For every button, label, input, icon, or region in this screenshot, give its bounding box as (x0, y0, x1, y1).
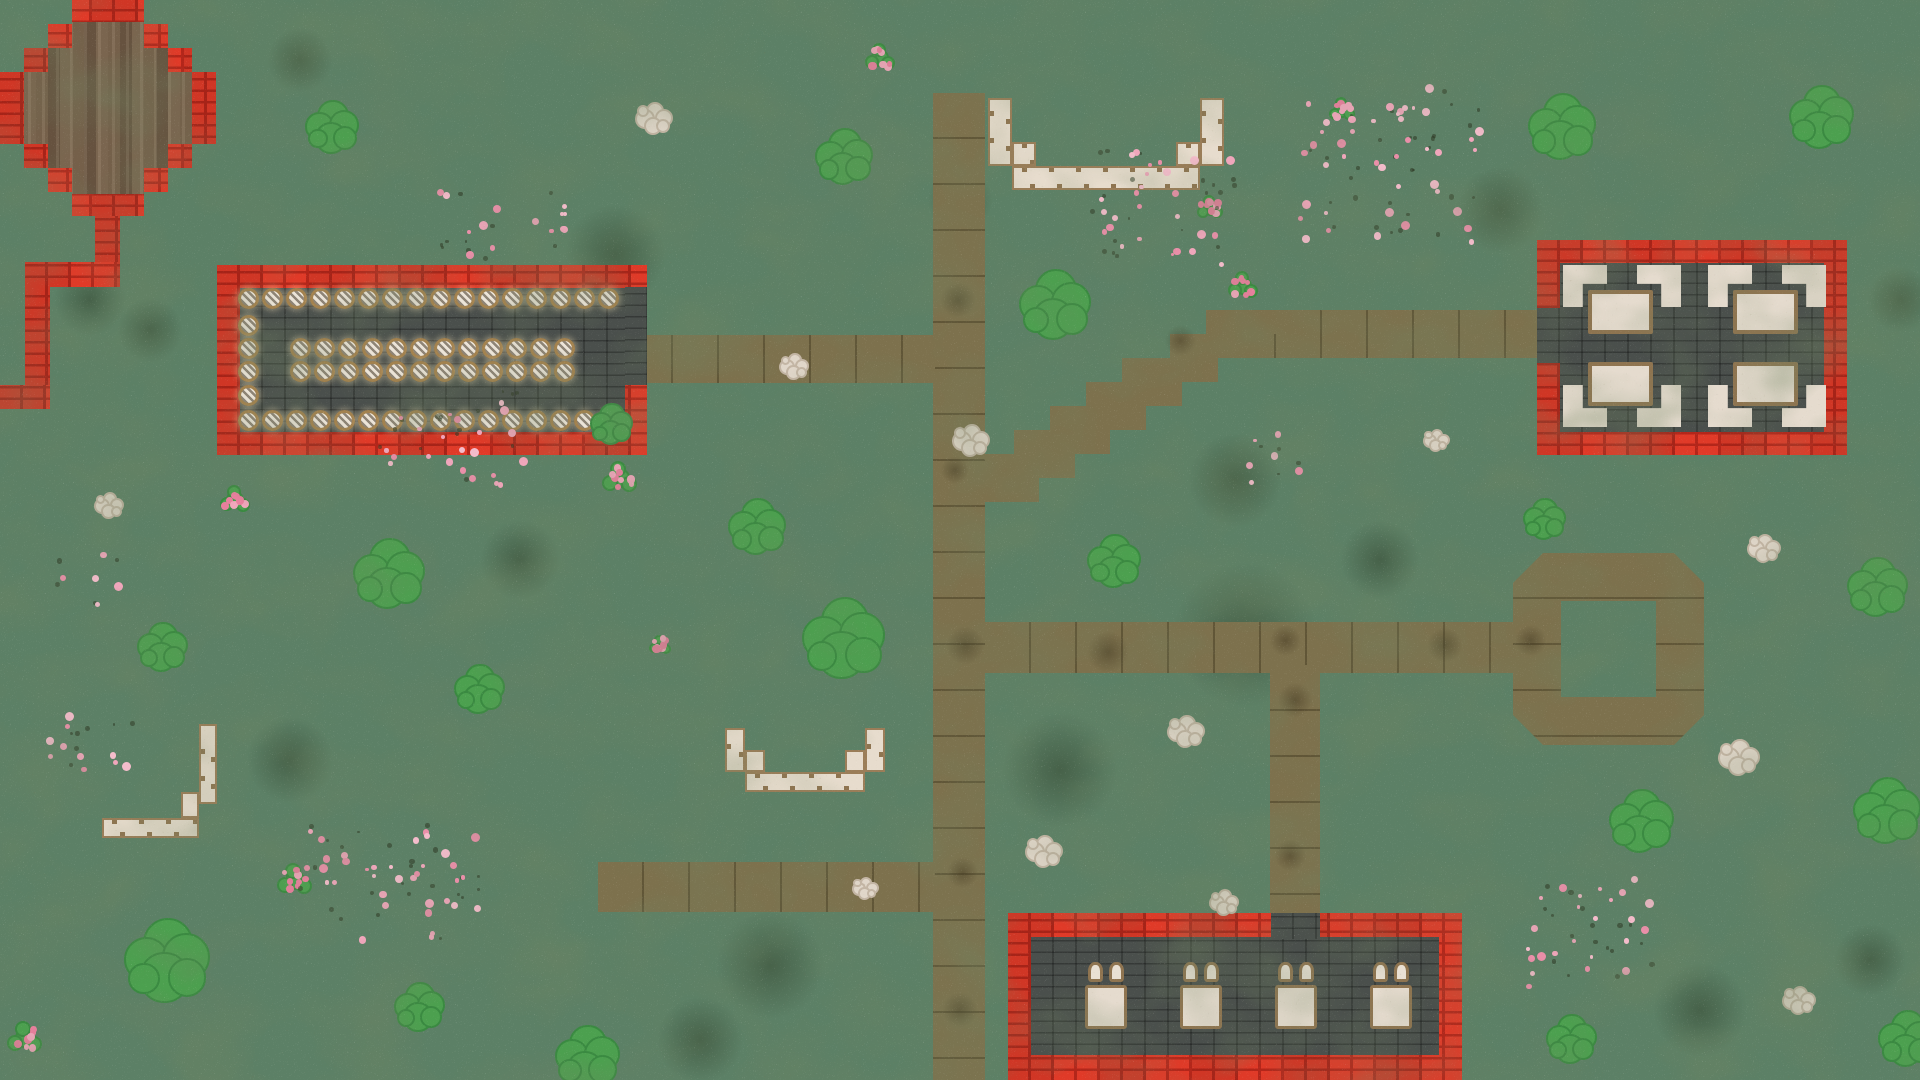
flower-patch-petal (92, 575, 99, 582)
bush (592, 426, 608, 442)
flower-patch-speck (430, 884, 435, 889)
target[interactable] (386, 361, 407, 382)
flower-patch-speck (1606, 946, 1609, 949)
flower-patch-petal (1425, 147, 1429, 151)
bush (732, 529, 753, 550)
bush (1882, 1041, 1903, 1062)
flower-patch-petal (1624, 938, 1630, 944)
brick-trail-segment (0, 385, 50, 409)
flower-patch-speck (1356, 166, 1360, 170)
target[interactable] (410, 361, 431, 382)
flower-patch-petal (1386, 103, 1394, 111)
flower-patch-petal (1134, 190, 1139, 195)
dirt-path-stairs-step (1122, 358, 1218, 382)
bush (1090, 563, 1110, 583)
flower-patch-petal (1295, 467, 1303, 475)
flower-patch-petal (1530, 971, 1535, 976)
bed[interactable] (1275, 985, 1317, 1029)
target[interactable] (338, 338, 359, 359)
rock-cluster (1169, 718, 1181, 730)
target[interactable] (286, 288, 307, 309)
flower-patch-speck (1296, 461, 1300, 465)
flower-patch-petal (1469, 239, 1474, 244)
flower-patch-petal (460, 467, 466, 473)
target[interactable] (502, 288, 523, 309)
target[interactable] (362, 361, 383, 382)
plaster-wall-segment (745, 772, 865, 792)
rock-cluster (973, 441, 987, 455)
bush (140, 649, 158, 667)
flower-patch-petal (1374, 232, 1381, 239)
target[interactable] (406, 288, 427, 309)
target[interactable] (530, 338, 551, 359)
flower-patch-petal (1430, 180, 1439, 189)
flower-patch-petal (443, 192, 450, 199)
flower-patch-speck (1277, 473, 1280, 476)
flower-patch-petal (425, 899, 434, 908)
flower-patch-petal (1226, 156, 1235, 165)
dining-table[interactable] (1588, 290, 1653, 334)
bush (1612, 823, 1635, 846)
dirt-path-stairs-step (1170, 334, 1266, 358)
flower-patch-speck (1649, 962, 1654, 967)
target[interactable] (430, 288, 451, 309)
flower-patch-petal (388, 461, 392, 465)
flower-patch-speck (85, 726, 90, 731)
brick-trail-segment (95, 216, 120, 264)
flower-patch-petal (389, 865, 393, 869)
rock-cluster (796, 367, 807, 378)
flower-patch-speck (433, 847, 439, 853)
flower-patch-petal (1302, 235, 1309, 242)
rock-cluster (656, 119, 670, 133)
target[interactable] (526, 288, 547, 309)
target[interactable] (554, 361, 575, 382)
target[interactable] (338, 361, 359, 382)
bush (1525, 521, 1541, 537)
flower-patch-petal (304, 865, 310, 871)
plaster-wall-segment (745, 750, 765, 772)
flower-patch-petal (493, 205, 501, 213)
dirt-path (598, 862, 935, 912)
rock-cluster (954, 427, 966, 439)
flower-patch-petal (1190, 156, 1199, 165)
flower-patch-speck (1218, 190, 1223, 195)
flower-patch-petal (1425, 84, 1434, 93)
flower-patch-speck (329, 907, 334, 912)
flower-patch-speck (1551, 914, 1554, 917)
target[interactable] (478, 288, 499, 309)
flower-patch-petal (451, 902, 459, 910)
flower-patch-petal (1324, 211, 1328, 215)
bush (1792, 119, 1815, 142)
target[interactable] (526, 410, 547, 431)
target[interactable] (506, 361, 527, 382)
rock-cluster (1226, 903, 1237, 914)
bush (390, 572, 422, 604)
dining-table[interactable] (1733, 362, 1798, 406)
flower-patch-petal (391, 454, 397, 460)
flower-patch-petal (372, 874, 376, 878)
flower-patch-speck (425, 823, 430, 828)
flower-patch-petal (1528, 955, 1535, 962)
bush (1563, 125, 1593, 155)
target[interactable] (506, 338, 527, 359)
dining-table[interactable] (1588, 362, 1653, 406)
flower-patch-petal (1099, 197, 1104, 202)
rock-cluster (1188, 732, 1202, 746)
rock-cluster (1027, 838, 1039, 850)
target[interactable] (334, 410, 355, 431)
flower-patch-speck (1568, 890, 1573, 895)
flower-patch-petal (1320, 130, 1324, 134)
flower-patch-petal (467, 230, 471, 234)
target-range-door[interactable] (625, 287, 647, 385)
target[interactable] (434, 361, 455, 382)
rock-cluster (637, 105, 649, 117)
flower-patch-petal (1172, 190, 1179, 197)
flower-patch-petal (1106, 224, 1114, 232)
rose-flower (221, 502, 229, 510)
bush (1115, 560, 1139, 584)
target[interactable] (554, 338, 575, 359)
flower-patch-petal (60, 575, 66, 581)
plaster-wall-segment (845, 750, 865, 772)
flower-patch-speck (57, 558, 62, 563)
rose-flower (652, 645, 660, 653)
target[interactable] (482, 361, 503, 382)
flower-patch-speck (75, 731, 79, 735)
rock-cluster (853, 879, 861, 887)
rock-cluster (1046, 852, 1060, 866)
dirt-path-stairs-step (1086, 382, 1182, 406)
bush (1857, 813, 1882, 838)
inn-door[interactable] (1271, 913, 1320, 939)
flower-patch-petal (446, 458, 454, 466)
flower-patch-petal (1212, 232, 1219, 239)
rose-flower (236, 496, 245, 505)
flower-patch-speck (1332, 225, 1336, 229)
rose-flower (627, 475, 635, 483)
flower-patch-speck (1617, 923, 1622, 928)
flower-patch-speck (483, 256, 488, 261)
bed[interactable] (1370, 985, 1412, 1029)
flower-patch-petal (1402, 105, 1408, 111)
flower-patch-speck (1353, 195, 1358, 200)
flower-patch-petal (429, 934, 435, 940)
bed-pillow (1088, 962, 1103, 982)
target[interactable] (482, 338, 503, 359)
flower-patch-speck (419, 447, 422, 450)
target[interactable] (290, 338, 311, 359)
target[interactable] (262, 410, 283, 431)
target[interactable] (314, 338, 335, 359)
plaster-wall-segment (1012, 142, 1036, 166)
flower-patch-petal (1139, 185, 1143, 189)
flower-patch-speck (1277, 447, 1281, 451)
target[interactable] (314, 361, 335, 382)
bush (168, 958, 206, 996)
dining-hall-door[interactable] (1537, 308, 1560, 363)
flower-patch-petal (342, 858, 349, 865)
bush (558, 1059, 581, 1080)
target[interactable] (358, 288, 379, 309)
target[interactable] (550, 288, 571, 309)
flower-patch-petal (1275, 431, 1281, 437)
flower-patch-speck (1232, 183, 1236, 187)
flower-patch-petal (1537, 952, 1546, 961)
dirt-path-stairs-step (1206, 310, 1290, 334)
flower-patch-petal (1271, 452, 1278, 459)
plaster-wall-segment (725, 728, 745, 772)
rose-flower (1333, 113, 1341, 121)
target[interactable] (406, 410, 427, 431)
brick-trail-segment (25, 262, 120, 287)
flower-patch-petal (560, 226, 567, 233)
bed[interactable] (1180, 985, 1222, 1029)
target[interactable] (334, 288, 355, 309)
flower-patch-petal (1531, 925, 1538, 932)
bush (357, 576, 383, 602)
rose-flower (1231, 290, 1239, 298)
bush (1642, 819, 1671, 848)
rose-flower (302, 876, 308, 882)
rose-flower (615, 484, 621, 490)
plaster-wall-segment (102, 818, 199, 838)
target[interactable] (434, 338, 455, 359)
bed-pillow (1109, 962, 1124, 982)
bed-pillow (1394, 962, 1409, 982)
bush (807, 641, 837, 671)
flower-patch-petal (1590, 955, 1594, 959)
bush (333, 126, 357, 150)
bed-pillow (1204, 962, 1219, 982)
flower-patch-speck (1105, 149, 1110, 154)
flower-patch-speck (511, 444, 515, 448)
flower-patch-petal (1302, 200, 1311, 209)
flower-patch-speck (1259, 445, 1262, 448)
rock-cluster (1784, 988, 1795, 999)
bed[interactable] (1085, 985, 1127, 1029)
flower-patch-petal (332, 880, 337, 885)
flower-patch-petal (1641, 926, 1649, 934)
bush (845, 637, 882, 674)
flower-patch-petal (1526, 984, 1531, 989)
dirt-path-stairs-step (985, 454, 1075, 478)
dirt-path-stairs-step (985, 478, 1039, 502)
flower-patch-petal (1343, 104, 1348, 109)
flower-patch-speck (1477, 108, 1480, 111)
flower-patch-petal (1102, 229, 1108, 235)
flower-patch-petal (1163, 168, 1171, 176)
flower-patch-speck (313, 865, 317, 869)
flower-patch-petal (46, 737, 53, 744)
bed-pillow (1373, 962, 1388, 982)
flower-patch-petal (490, 245, 495, 250)
target[interactable] (454, 288, 475, 309)
flower-patch-petal (519, 457, 528, 466)
target[interactable] (238, 361, 259, 382)
target[interactable] (358, 410, 379, 431)
flower-patch-petal (1348, 116, 1356, 124)
flower-patch-petal (459, 447, 465, 453)
flower-patch-speck (1412, 169, 1414, 171)
target[interactable] (382, 410, 403, 431)
flower-patch-petal (426, 454, 431, 459)
bush (758, 526, 784, 552)
flower-patch-speck (511, 392, 514, 395)
target[interactable] (458, 338, 479, 359)
bush (1888, 809, 1918, 839)
flower-patch-speck (439, 937, 442, 940)
target[interactable] (530, 361, 551, 382)
rose-flower (29, 1044, 37, 1052)
brick-trail-segment (25, 287, 50, 387)
flower-patch-speck (477, 888, 480, 891)
flower-patch-petal (549, 229, 554, 234)
target[interactable] (290, 361, 311, 382)
flower-patch-petal (1148, 163, 1152, 167)
bed-pillow (1278, 962, 1293, 982)
target[interactable] (238, 315, 259, 336)
flower-patch-speck (1201, 178, 1206, 183)
bush (397, 1009, 415, 1027)
rock-cluster (1749, 536, 1760, 547)
game-map-viewport[interactable] (0, 0, 1920, 1080)
bush (1532, 129, 1557, 154)
target[interactable] (238, 410, 259, 431)
flower-patch-petal (1619, 889, 1626, 896)
bed-pillow (1183, 962, 1198, 982)
target[interactable] (550, 410, 571, 431)
flower-patch-speck (326, 839, 329, 842)
flower-patch-speck (1115, 254, 1118, 257)
rock-cluster (111, 506, 122, 517)
flower-patch-petal (65, 712, 74, 721)
flower-patch-speck (1215, 206, 1219, 210)
flower-patch-petal (1129, 152, 1135, 158)
target[interactable] (362, 338, 383, 359)
flower-patch-petal (1189, 248, 1196, 255)
flower-patch-petal (325, 880, 330, 885)
flower-patch-petal (1645, 899, 1654, 908)
plaster-wall-segment (199, 724, 217, 804)
dirt-path (933, 93, 985, 1080)
flower-patch-speck (1413, 136, 1417, 140)
dirt-path (1270, 665, 1320, 915)
flower-patch-petal (1342, 154, 1346, 158)
flower-patch-speck (1090, 209, 1095, 214)
target[interactable] (458, 361, 479, 382)
target[interactable] (286, 410, 307, 431)
plaster-wall-segment (1012, 166, 1200, 190)
flower-patch-speck (1567, 974, 1570, 977)
flower-patch-speck (1374, 225, 1379, 230)
dining-table[interactable] (1733, 290, 1798, 334)
flower-patch-petal (437, 189, 444, 196)
dirt-path (985, 622, 1520, 673)
flower-patch-petal (1394, 154, 1399, 159)
flower-patch-petal (1622, 967, 1630, 975)
flower-patch-speck (445, 240, 448, 243)
target[interactable] (598, 288, 619, 309)
target[interactable] (310, 410, 331, 431)
flower-patch-speck (1610, 949, 1614, 953)
flower-patch-petal (122, 762, 131, 771)
ring-grass-island (1561, 601, 1656, 697)
flower-patch-petal (444, 898, 450, 904)
flower-patch-petal (1306, 101, 1311, 106)
flower-patch-petal (471, 833, 480, 842)
flower-patch-petal (1422, 108, 1430, 116)
target[interactable] (382, 288, 403, 309)
target[interactable] (574, 288, 595, 309)
rose-flower (286, 885, 294, 893)
target[interactable] (386, 338, 407, 359)
plaster-wall-segment (865, 728, 885, 772)
bush (308, 129, 328, 149)
flower-patch-petal (1464, 225, 1471, 232)
flower-patch-petal (319, 864, 328, 873)
dirt-path-stairs-step (1050, 406, 1146, 430)
flower-patch-speck (502, 390, 505, 393)
flower-patch-speck (130, 721, 135, 726)
flower-patch-petal (1435, 149, 1442, 156)
flower-patch-petal (1552, 951, 1558, 957)
flower-patch-speck (298, 886, 303, 891)
dining-hall-floor (1560, 263, 1824, 432)
flower-patch-speck (458, 192, 462, 196)
bush (845, 156, 871, 182)
flower-patch-petal (110, 752, 116, 758)
flower-patch-petal (77, 753, 84, 760)
flower-patch-speck (340, 845, 344, 849)
rose-flower (877, 47, 882, 52)
target[interactable] (478, 410, 499, 431)
flower-patch-speck (1113, 239, 1117, 243)
flower-patch-speck (1102, 249, 1107, 254)
flower-patch-petal (441, 849, 450, 858)
flower-patch-speck (1212, 183, 1216, 187)
target[interactable] (262, 288, 283, 309)
flower-patch-petal (532, 218, 539, 225)
flower-patch-petal (421, 864, 425, 868)
bush (1850, 589, 1872, 611)
target[interactable] (238, 288, 259, 309)
flower-patch-petal (1593, 916, 1598, 921)
rose-flower (660, 635, 667, 642)
bush (128, 963, 159, 994)
plaster-wall-segment (1200, 98, 1224, 166)
flower-patch-speck (1570, 934, 1574, 938)
flower-patch-petal (562, 204, 567, 209)
bush (819, 159, 840, 180)
flower-patch-petal (1473, 148, 1477, 152)
flower-patch-petal (384, 448, 388, 452)
bush (1878, 585, 1905, 612)
target[interactable] (238, 385, 259, 406)
target[interactable] (238, 338, 259, 359)
flower-patch-petal (1137, 237, 1142, 242)
bush (1023, 307, 1049, 333)
target[interactable] (310, 288, 331, 309)
flower-patch-speck (1436, 232, 1441, 237)
flower-patch-petal (379, 891, 387, 899)
target[interactable] (410, 338, 431, 359)
flower-patch-petal (425, 909, 433, 917)
rose-flower (287, 878, 294, 885)
plaster-wall-segment (988, 98, 1012, 166)
